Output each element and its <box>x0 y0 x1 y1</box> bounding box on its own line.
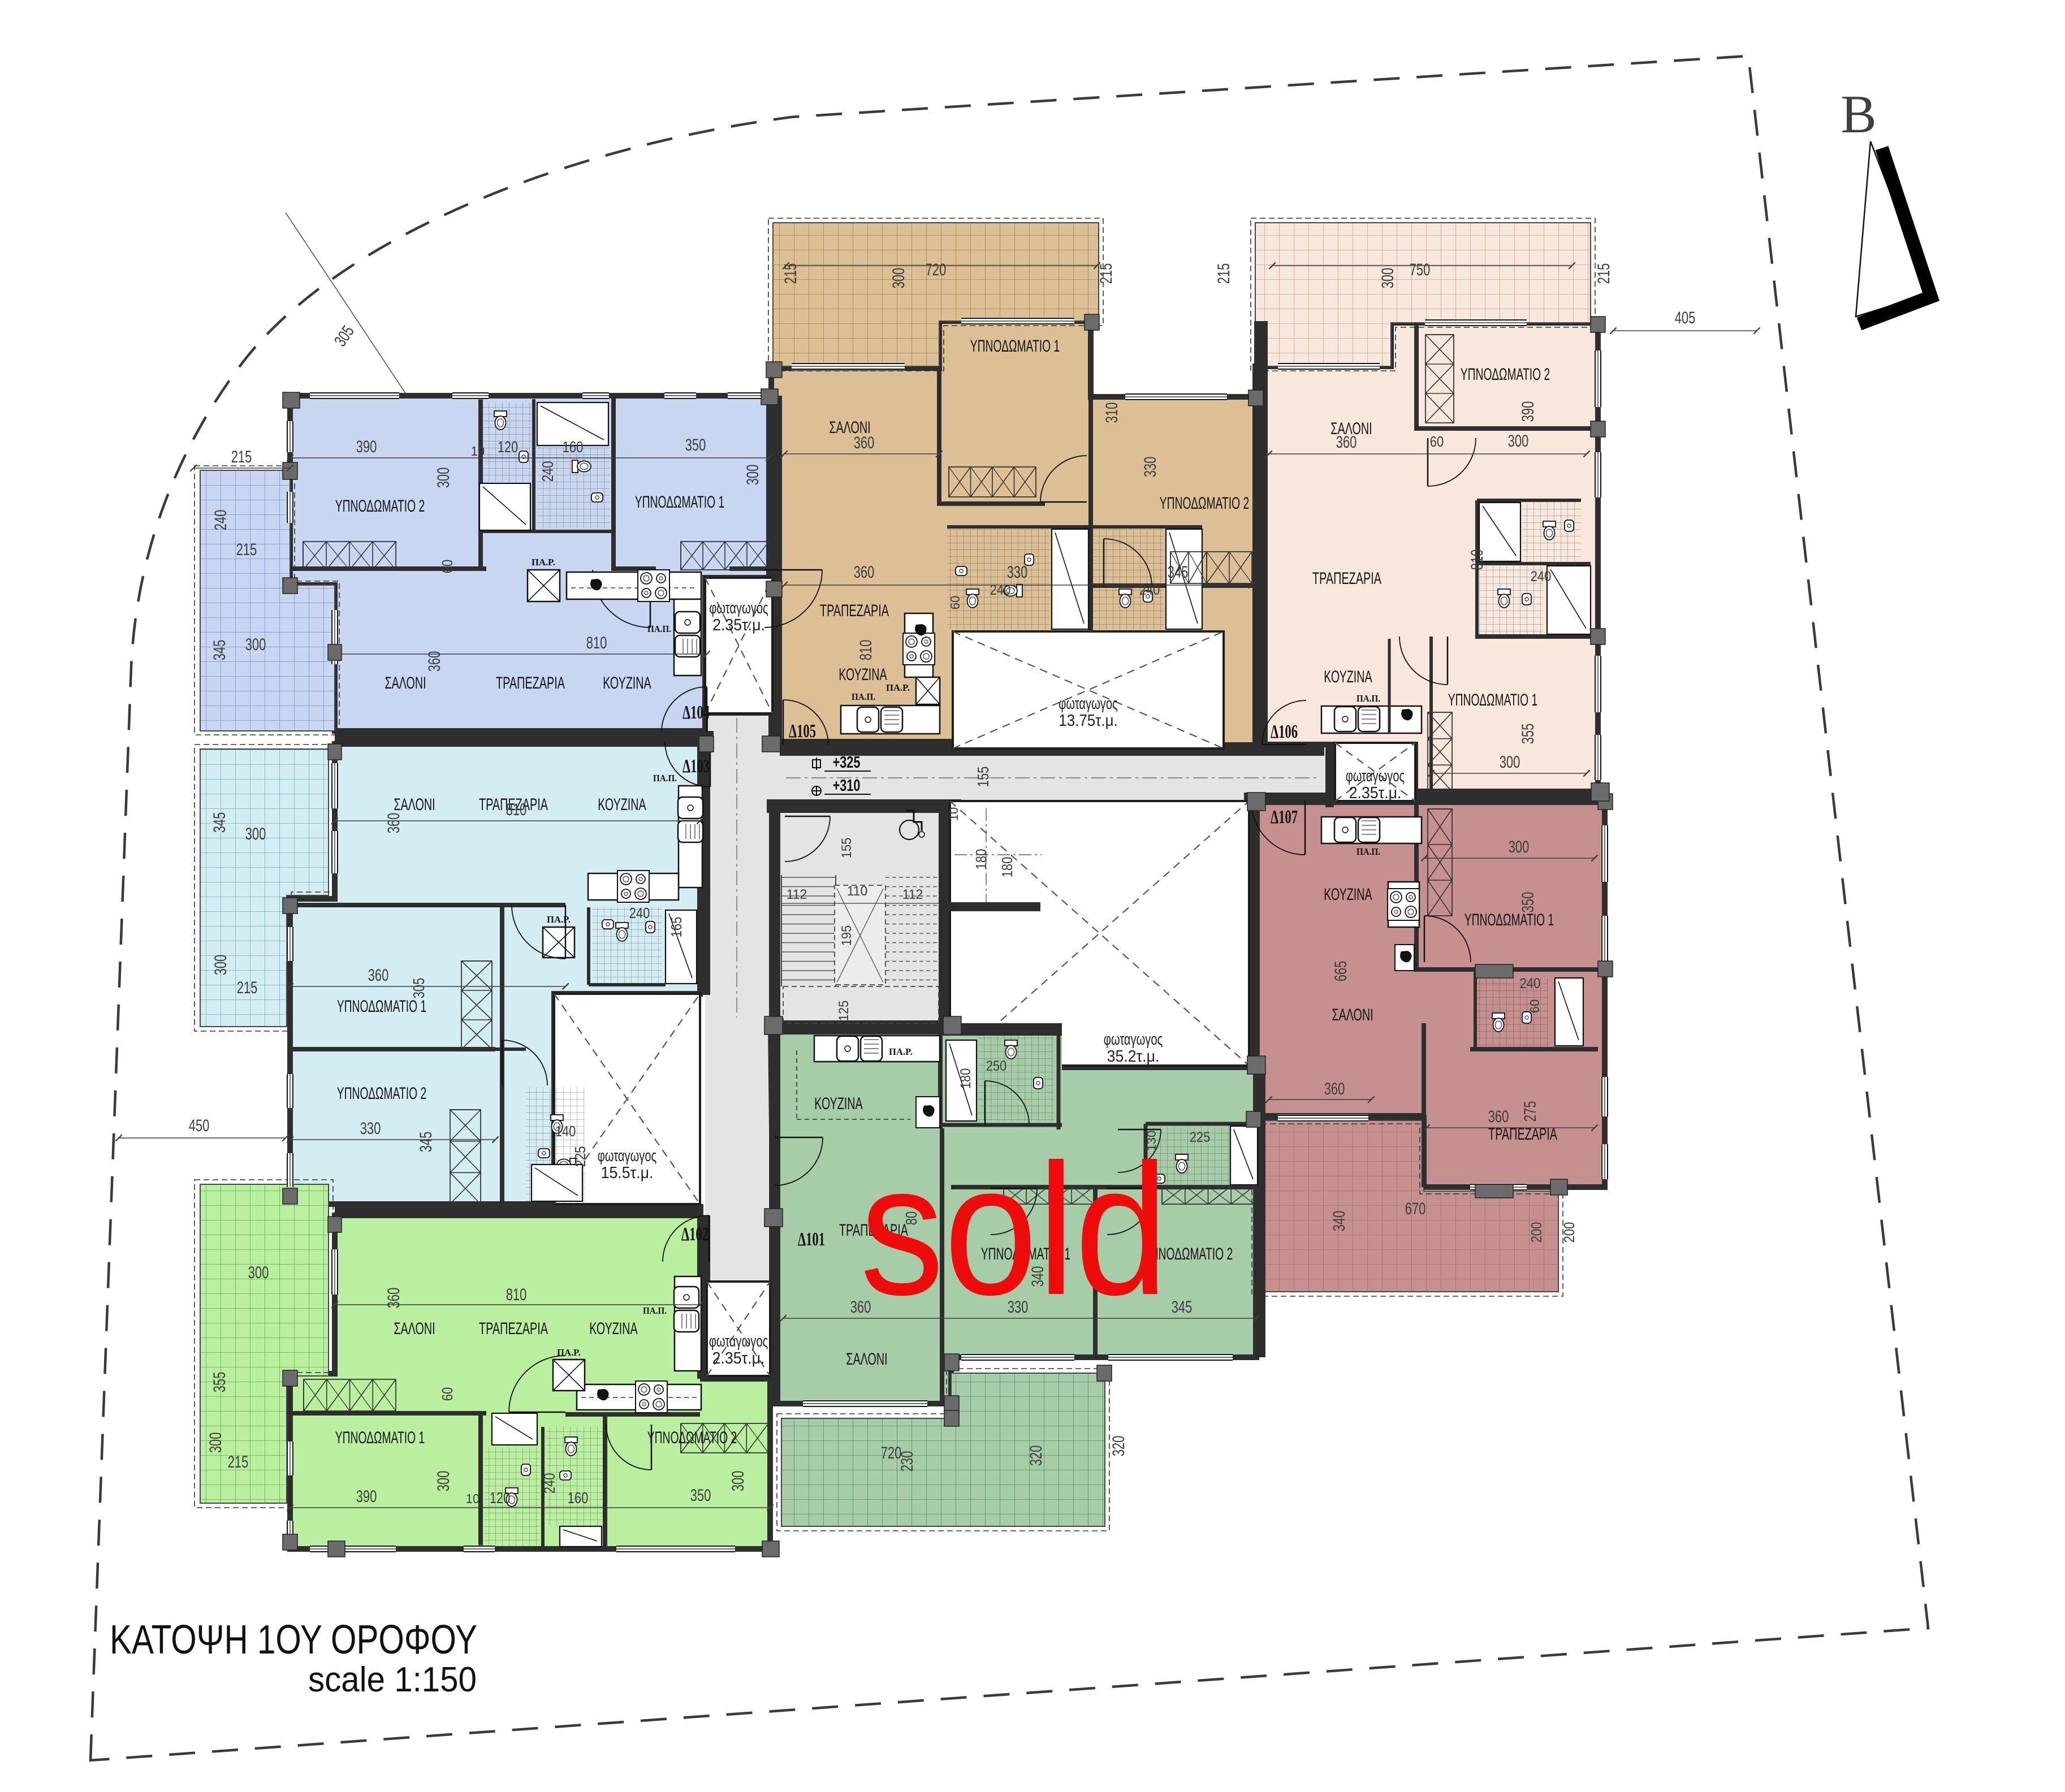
svg-text:110: 110 <box>847 884 868 899</box>
svg-text:φωταγωγος: φωταγωγος <box>709 599 768 617</box>
svg-text:360: 360 <box>854 434 875 452</box>
svg-text:350: 350 <box>685 436 706 455</box>
svg-text:230: 230 <box>898 1451 917 1472</box>
svg-text:810: 810 <box>506 800 527 819</box>
svg-text:ΚΟΥΖΙΝΑ: ΚΟΥΖΙΝΑ <box>839 665 887 684</box>
svg-text:155: 155 <box>839 838 854 859</box>
svg-text:10: 10 <box>471 444 485 458</box>
svg-text:240: 240 <box>1520 976 1541 992</box>
svg-text:240: 240 <box>990 582 1011 598</box>
svg-text:ΥΠΝΟΔΩΜΑΤΙΟ 1: ΥΠΝΟΔΩΜΑΤΙΟ 1 <box>337 997 427 1016</box>
svg-text:Δ104: Δ104 <box>682 702 710 723</box>
svg-text:112: 112 <box>902 887 923 902</box>
svg-text:300: 300 <box>1379 268 1397 289</box>
svg-text:sold: sold <box>860 1125 1168 1334</box>
svg-text:320: 320 <box>1109 1436 1128 1457</box>
svg-text:ΠΑ.Π.: ΠΑ.Π. <box>1356 693 1380 704</box>
svg-text:120: 120 <box>498 438 519 456</box>
svg-text:360: 360 <box>385 813 403 834</box>
svg-text:180: 180 <box>999 857 1016 878</box>
svg-text:215: 215 <box>1215 263 1233 284</box>
svg-text:345: 345 <box>210 812 229 833</box>
svg-text:125: 125 <box>836 1001 852 1021</box>
svg-text:ΠΑ.Ρ.: ΠΑ.Ρ. <box>886 682 910 693</box>
svg-text:360: 360 <box>385 1288 403 1309</box>
svg-text:305: 305 <box>410 978 427 999</box>
svg-text:ΣΑΛΟΝΙ: ΣΑΛΟΝΙ <box>394 1319 435 1338</box>
svg-text:360: 360 <box>1488 1107 1509 1126</box>
svg-text:215: 215 <box>1097 263 1116 284</box>
svg-text:225: 225 <box>572 1146 589 1167</box>
svg-text:275: 275 <box>1521 1101 1540 1122</box>
svg-text:ΚΟΥΖΙΝΑ: ΚΟΥΖΙΝΑ <box>1324 885 1372 904</box>
svg-text:ΚΟΥΖΙΝΑ: ΚΟΥΖΙΝΑ <box>1324 668 1372 686</box>
svg-text:13.75τ.μ.: 13.75τ.μ. <box>1059 712 1117 730</box>
svg-text:ΥΠΝΟΔΩΜΑΤΙΟ 2: ΥΠΝΟΔΩΜΑΤΙΟ 2 <box>1160 494 1250 513</box>
svg-text:160: 160 <box>568 1489 589 1507</box>
svg-text:360: 360 <box>1324 1080 1345 1098</box>
svg-text:390: 390 <box>356 438 377 456</box>
svg-text:ΠΑ.Π.: ΠΑ.Π. <box>647 624 671 634</box>
svg-text:Δ107: Δ107 <box>1271 807 1298 828</box>
svg-text:10: 10 <box>466 1491 479 1506</box>
svg-text:ΚΟΥΖΙΝΑ: ΚΟΥΖΙΝΑ <box>598 795 646 814</box>
svg-text:φωταγωγος: φωταγωγος <box>1059 695 1117 713</box>
svg-text:355: 355 <box>1519 724 1537 744</box>
svg-text:+325: +325 <box>833 754 861 772</box>
svg-text:ΥΠΝΟΔΩΜΑΤΙΟ 2: ΥΠΝΟΔΩΜΑΤΙΟ 2 <box>335 497 425 516</box>
svg-text:35.2τ.μ.: 35.2τ.μ. <box>1107 1048 1160 1066</box>
svg-text:330: 330 <box>360 1119 381 1138</box>
svg-text:ΠΑ.Ρ.: ΠΑ.Ρ. <box>557 1347 581 1358</box>
svg-text:215: 215 <box>228 1453 249 1471</box>
svg-text:2.35τ.μ.: 2.35τ.μ. <box>712 1349 765 1367</box>
svg-text:750: 750 <box>1410 261 1431 279</box>
svg-text:ΥΠΝΟΔΩΜΑΤΙΟ 1: ΥΠΝΟΔΩΜΑΤΙΟ 1 <box>970 337 1060 356</box>
svg-text:360: 360 <box>368 966 389 985</box>
svg-text:ΤΡΑΠΕΖΑΡΙΑ: ΤΡΑΠΕΖΑΡΙΑ <box>820 601 889 620</box>
svg-text:ΚΟΥΖΙΝΑ: ΚΟΥΖΙΝΑ <box>603 674 651 692</box>
svg-text:112: 112 <box>787 887 807 902</box>
svg-text:300: 300 <box>248 1263 269 1282</box>
svg-text:300: 300 <box>744 465 762 486</box>
svg-text:360: 360 <box>1336 433 1357 452</box>
svg-text:240: 240 <box>629 904 650 921</box>
svg-text:ΥΠΝΟΔΩΜΑΤΙΟ 1: ΥΠΝΟΔΩΜΑΤΙΟ 1 <box>1464 911 1554 929</box>
svg-text:120: 120 <box>490 1489 511 1507</box>
svg-text:810: 810 <box>1468 549 1487 570</box>
svg-text:ΤΡΑΠΕΖΑΡΙΑ: ΤΡΑΠΕΖΑΡΙΑ <box>479 1319 548 1338</box>
svg-text:215: 215 <box>781 263 800 284</box>
svg-text:ΣΑΛΟΝΙ: ΣΑΛΟΝΙ <box>1332 1006 1373 1024</box>
svg-text:60: 60 <box>1430 433 1444 450</box>
svg-text:60: 60 <box>1527 999 1542 1013</box>
svg-text:225: 225 <box>1190 1129 1211 1145</box>
svg-text:Δ103: Δ103 <box>682 756 710 777</box>
svg-text:Δ105: Δ105 <box>789 721 816 742</box>
svg-text:60: 60 <box>948 596 962 609</box>
svg-text:300: 300 <box>1508 432 1529 451</box>
svg-text:390: 390 <box>1519 401 1537 422</box>
svg-text:300: 300 <box>245 825 266 843</box>
svg-text:ΣΑΛΟΝΙ: ΣΑΛΟΝΙ <box>846 1350 887 1369</box>
svg-text:ΥΠΝΟΔΩΜΑΤΙΟ 2: ΥΠΝΟΔΩΜΑΤΙΟ 2 <box>647 1429 737 1447</box>
svg-text:ΚΟΥΖΙΝΑ: ΚΟΥΖΙΝΑ <box>814 1094 862 1113</box>
svg-text:ΠΑ.Π.: ΠΑ.Π. <box>852 691 875 702</box>
svg-text:300: 300 <box>1500 753 1520 772</box>
svg-text:ΤΡΑΠΕΖΑΡΙΑ: ΤΡΑΠΕΖΑΡΙΑ <box>496 674 565 692</box>
svg-text:scale 1:150: scale 1:150 <box>308 1660 477 1699</box>
svg-text:ΥΠΝΟΔΩΜΑΤΙΟ 1: ΥΠΝΟΔΩΜΑΤΙΟ 1 <box>1448 691 1538 709</box>
svg-text:300: 300 <box>206 1432 225 1453</box>
svg-text:ΠΑ.Π.: ΠΑ.Π. <box>1356 846 1380 857</box>
svg-text:360: 360 <box>854 563 875 582</box>
svg-text:240: 240 <box>211 510 230 531</box>
svg-text:φωταγωγος: φωταγωγος <box>1104 1031 1163 1049</box>
svg-text:810: 810 <box>506 1285 527 1304</box>
svg-text:Δ106: Δ106 <box>1271 721 1298 742</box>
svg-text:215: 215 <box>237 979 258 997</box>
svg-text:300: 300 <box>245 635 266 654</box>
svg-text:ΚΑΤΟΨΗ 1ΟΥ ΟΡΟΦΟΥ: ΚΑΤΟΨΗ 1ΟΥ ΟΡΟΦΟΥ <box>110 1617 477 1663</box>
svg-text:60: 60 <box>439 1387 456 1401</box>
svg-text:ΣΑΛΟΝΙ: ΣΑΛΟΝΙ <box>394 795 435 814</box>
svg-text:140: 140 <box>555 1123 576 1140</box>
svg-text:Δ101: Δ101 <box>798 1229 825 1250</box>
svg-text:350: 350 <box>690 1486 711 1505</box>
svg-text:φωταγωγος: φωταγωγος <box>1346 767 1405 785</box>
svg-text:200: 200 <box>1561 1222 1578 1243</box>
svg-text:215: 215 <box>231 448 252 466</box>
svg-text:2.35τ.μ.: 2.35τ.μ. <box>712 616 765 634</box>
svg-text:B: B <box>1841 84 1876 144</box>
svg-text:ΠΑ.Π.: ΠΑ.Π. <box>643 1305 667 1316</box>
svg-text:345: 345 <box>1172 1298 1193 1317</box>
svg-text:15.5τ.μ.: 15.5τ.μ. <box>601 1164 654 1182</box>
svg-text:ΠΑ.Π.: ΠΑ.Π. <box>653 773 677 784</box>
svg-text:180: 180 <box>973 849 990 870</box>
svg-text:670: 670 <box>1405 1200 1426 1218</box>
svg-text:ΥΠΝΟΔΩΜΑΤΙΟ 2: ΥΠΝΟΔΩΜΑΤΙΟ 2 <box>1461 365 1550 384</box>
svg-text:320: 320 <box>1027 1445 1046 1466</box>
svg-text:810: 810 <box>857 640 875 661</box>
svg-text:ΠΑ.Ρ.: ΠΑ.Ρ. <box>889 1046 913 1057</box>
svg-text:450: 450 <box>189 1116 210 1135</box>
svg-text:240: 240 <box>539 461 556 482</box>
svg-text:300: 300 <box>211 955 230 976</box>
svg-text:60: 60 <box>439 560 456 573</box>
svg-text:200: 200 <box>1528 1222 1545 1243</box>
svg-text:300: 300 <box>1509 838 1530 856</box>
svg-text:240: 240 <box>1531 569 1552 585</box>
svg-text:10: 10 <box>947 807 961 821</box>
svg-text:240: 240 <box>541 1473 558 1494</box>
svg-text:330: 330 <box>1141 457 1160 478</box>
svg-text:215: 215 <box>236 540 257 559</box>
svg-text:ΠΑ.Ρ.: ΠΑ.Ρ. <box>532 557 555 568</box>
svg-text:ΤΡΑΠΕΖΑΡΙΑ: ΤΡΑΠΕΖΑΡΙΑ <box>1312 569 1381 588</box>
svg-text:390: 390 <box>356 1487 377 1506</box>
svg-text:165: 165 <box>668 917 685 938</box>
svg-text:2.35τ.μ.: 2.35τ.μ. <box>1349 784 1402 802</box>
svg-text:720: 720 <box>926 261 947 279</box>
svg-text:340: 340 <box>1330 1211 1349 1232</box>
svg-text:215: 215 <box>1595 263 1613 284</box>
svg-text:155: 155 <box>974 767 992 787</box>
svg-text:300: 300 <box>434 1471 453 1492</box>
svg-text:φωταγωγος: φωταγωγος <box>598 1147 656 1165</box>
svg-text:330: 330 <box>1007 563 1028 582</box>
svg-text:810: 810 <box>586 634 607 652</box>
svg-text:ΥΠΝΟΔΩΜΑΤΙΟ 1: ΥΠΝΟΔΩΜΑΤΙΟ 1 <box>335 1429 425 1447</box>
svg-text:350: 350 <box>1519 892 1537 913</box>
svg-text:300: 300 <box>729 1471 748 1492</box>
svg-text:355: 355 <box>210 1372 229 1393</box>
svg-text:ΠΑ.Ρ.: ΠΑ.Ρ. <box>547 914 571 925</box>
svg-text:+310: +310 <box>833 777 861 795</box>
svg-text:φωταγωγος: φωταγωγος <box>709 1332 768 1351</box>
svg-text:Δ102: Δ102 <box>681 1224 709 1245</box>
svg-text:195: 195 <box>839 925 854 946</box>
svg-text:ΚΟΥΖΙΝΑ: ΚΟΥΖΙΝΑ <box>589 1319 637 1338</box>
svg-text:345: 345 <box>417 1132 435 1153</box>
svg-text:300: 300 <box>434 468 453 488</box>
svg-text:180: 180 <box>958 1068 974 1089</box>
svg-text:240: 240 <box>1139 582 1160 598</box>
svg-text:ΥΠΝΟΔΩΜΑΤΙΟ 1: ΥΠΝΟΔΩΜΑΤΙΟ 1 <box>635 493 725 512</box>
svg-text:665: 665 <box>1332 961 1350 982</box>
svg-text:345: 345 <box>1168 563 1189 582</box>
svg-text:405: 405 <box>1675 309 1696 327</box>
svg-text:ΣΑΛΟΝΙ: ΣΑΛΟΝΙ <box>385 674 426 692</box>
svg-text:300: 300 <box>889 268 908 289</box>
svg-text:345: 345 <box>210 640 229 661</box>
svg-text:310: 310 <box>1103 402 1121 423</box>
svg-text:160: 160 <box>563 438 584 456</box>
svg-text:360: 360 <box>425 651 444 672</box>
svg-text:ΥΠΝΟΔΩΜΑΤΙΟ 2: ΥΠΝΟΔΩΜΑΤΙΟ 2 <box>337 1084 427 1103</box>
svg-text:250: 250 <box>986 1058 1007 1074</box>
